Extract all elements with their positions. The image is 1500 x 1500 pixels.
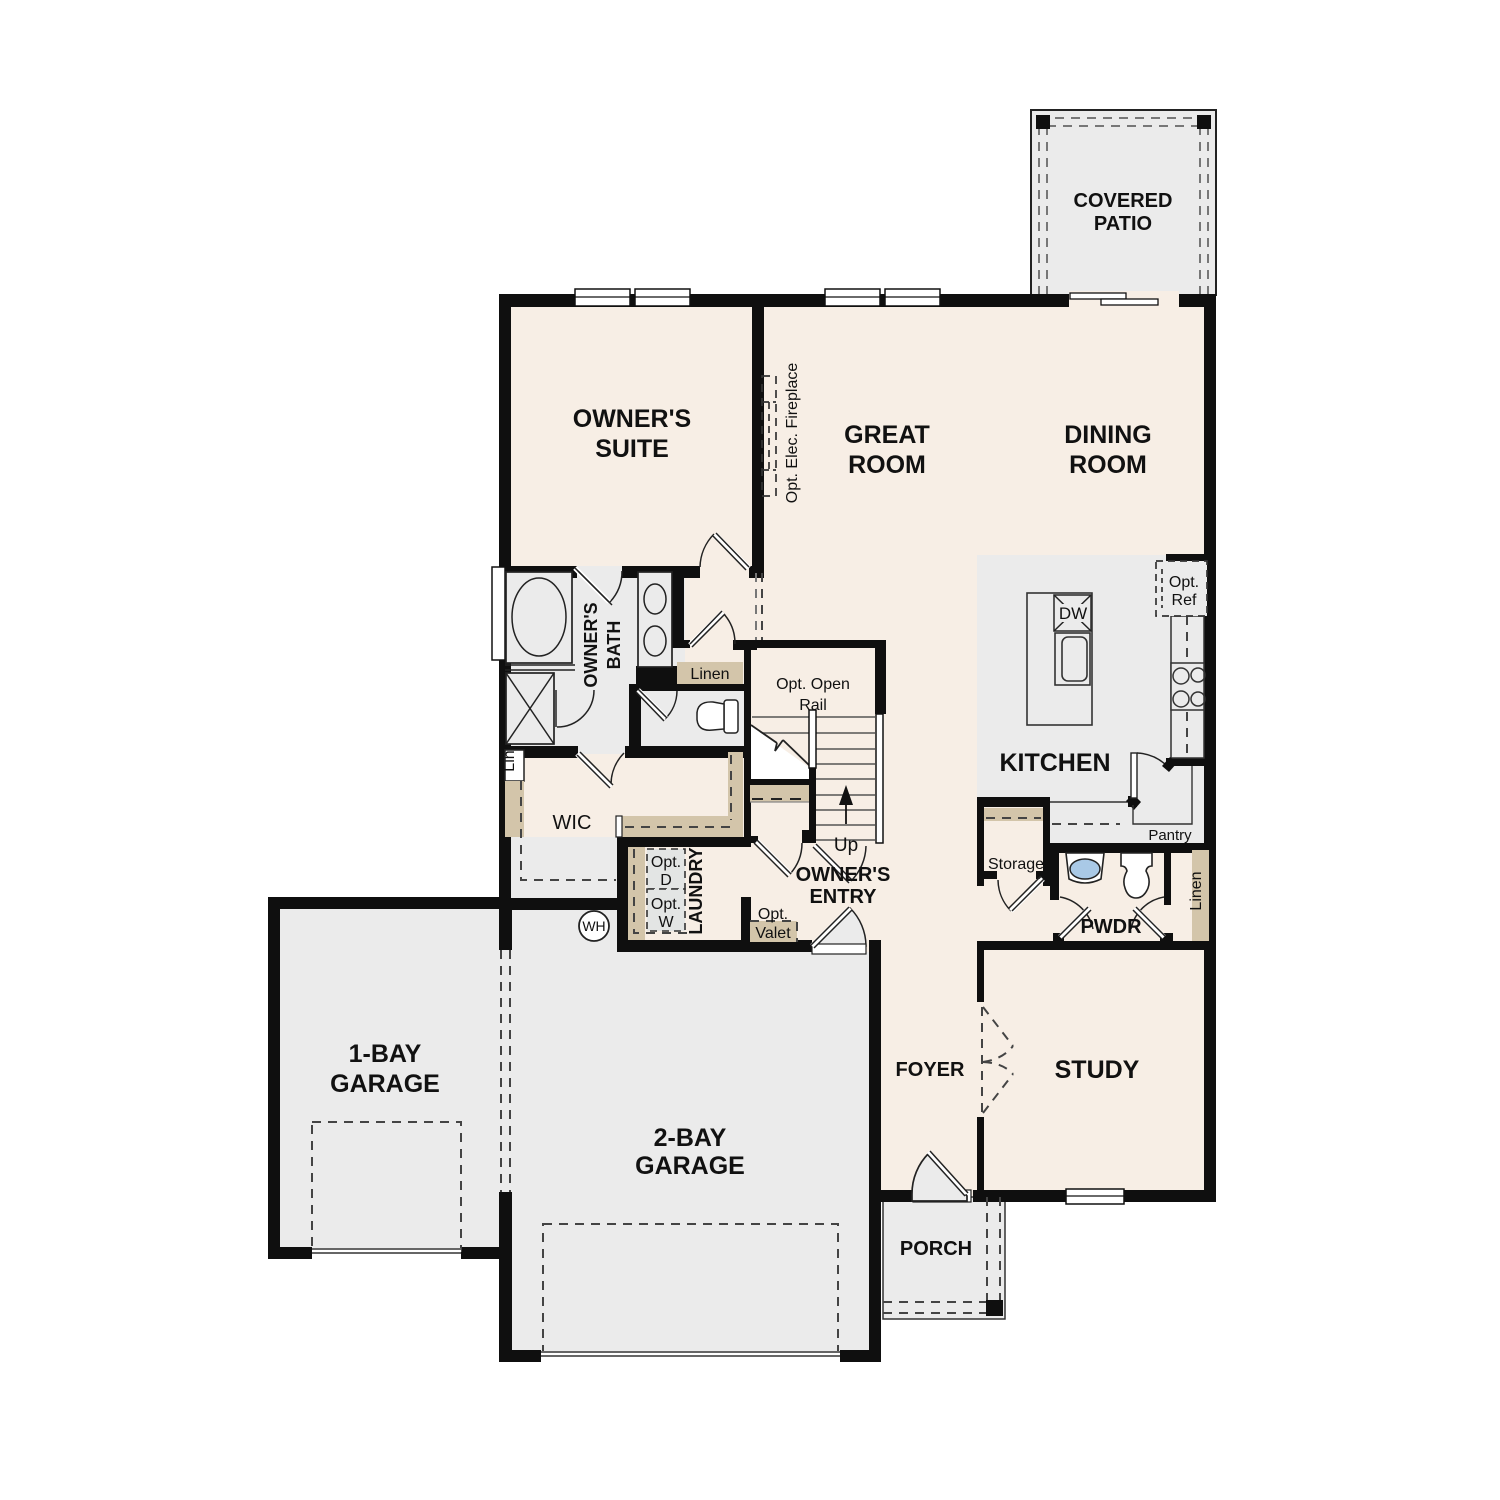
svg-text:Rail: Rail xyxy=(799,697,827,714)
svg-text:Ref: Ref xyxy=(1172,592,1197,609)
svg-text:Pantry: Pantry xyxy=(1148,827,1192,844)
svg-text:SUITE: SUITE xyxy=(595,435,669,463)
svg-text:GREAT: GREAT xyxy=(844,421,930,449)
svg-text:Opt.: Opt. xyxy=(1169,574,1199,591)
svg-text:GARAGE: GARAGE xyxy=(330,1070,440,1098)
svg-text:OWNER'S: OWNER'S xyxy=(796,864,891,886)
svg-text:OWNER'S: OWNER'S xyxy=(581,602,601,687)
svg-text:LAUNDRY: LAUNDRY xyxy=(686,847,706,934)
svg-text:PORCH: PORCH xyxy=(900,1238,972,1260)
svg-text:OWNER'S: OWNER'S xyxy=(573,405,691,433)
svg-text:Storage: Storage xyxy=(988,856,1044,873)
svg-text:Opt.: Opt. xyxy=(651,896,681,913)
svg-text:Linen: Linen xyxy=(1188,871,1205,910)
svg-text:Lin: Lin xyxy=(501,750,518,771)
svg-text:WH: WH xyxy=(582,918,605,934)
svg-text:COVERED: COVERED xyxy=(1074,190,1173,212)
svg-text:1-BAY: 1-BAY xyxy=(349,1040,422,1068)
svg-text:ROOM: ROOM xyxy=(1069,451,1147,479)
svg-text:D: D xyxy=(660,872,672,889)
svg-text:2-BAY: 2-BAY xyxy=(654,1124,727,1152)
svg-text:Up: Up xyxy=(834,835,858,856)
svg-text:WIC: WIC xyxy=(553,812,592,834)
svg-text:GARAGE: GARAGE xyxy=(635,1152,745,1180)
svg-text:KITCHEN: KITCHEN xyxy=(999,749,1110,777)
svg-text:ROOM: ROOM xyxy=(848,451,926,479)
svg-text:Valet: Valet xyxy=(755,925,791,942)
svg-text:Opt. Open: Opt. Open xyxy=(776,676,850,693)
svg-text:DW: DW xyxy=(1059,604,1087,623)
svg-text:FOYER: FOYER xyxy=(896,1059,965,1081)
svg-text:Opt.: Opt. xyxy=(758,906,788,923)
svg-text:STUDY: STUDY xyxy=(1055,1056,1140,1084)
svg-text:PWDR: PWDR xyxy=(1080,916,1142,938)
svg-text:PATIO: PATIO xyxy=(1094,213,1152,235)
svg-text:BATH: BATH xyxy=(604,621,624,670)
svg-text:DINING: DINING xyxy=(1064,421,1152,449)
svg-text:ENTRY: ENTRY xyxy=(809,886,877,908)
svg-text:Opt.: Opt. xyxy=(651,854,681,871)
svg-text:Linen: Linen xyxy=(690,666,729,683)
svg-text:W: W xyxy=(658,914,674,931)
svg-text:Opt. Elec. Fireplace: Opt. Elec. Fireplace xyxy=(784,363,801,504)
